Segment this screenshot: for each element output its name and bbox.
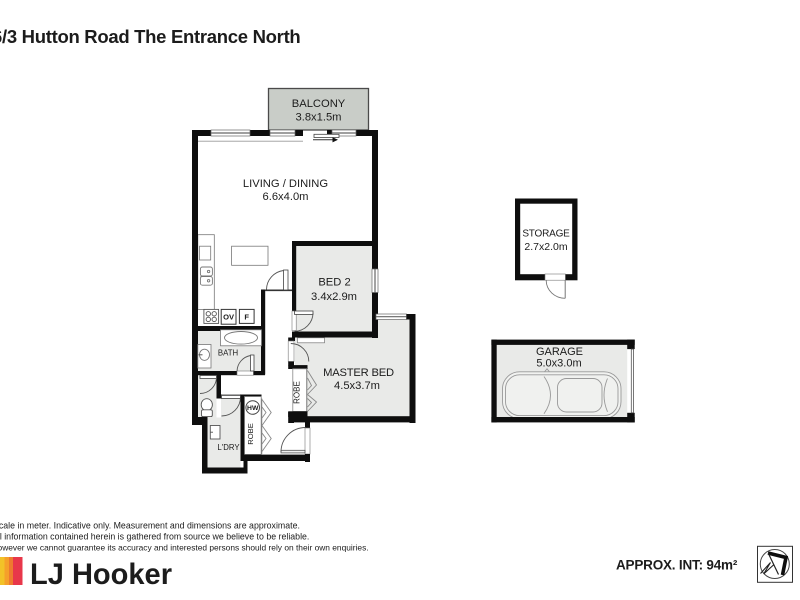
svg-text:However we cannot guarantee it: However we cannot guarantee its accuracy… — [0, 543, 369, 553]
svg-text:4.5x3.7m: 4.5x3.7m — [334, 380, 380, 392]
svg-text:APPROX. INT: 94m²: APPROX. INT: 94m² — [616, 558, 738, 573]
svg-text:2.7x2.0m: 2.7x2.0m — [524, 241, 567, 253]
svg-text:MASTER BED: MASTER BED — [323, 367, 394, 379]
svg-text:ROBE: ROBE — [292, 381, 301, 404]
svg-text:ROBE: ROBE — [246, 423, 255, 445]
svg-text:LJ Hooker: LJ Hooker — [30, 558, 173, 591]
svg-text:5.0x3.0m: 5.0x3.0m — [536, 358, 581, 370]
svg-text:All information contained here: All information contained herein is gath… — [0, 532, 309, 542]
svg-text:3.8x1.5m: 3.8x1.5m — [295, 112, 341, 124]
svg-text:OV: OV — [223, 313, 235, 322]
svg-text:STORAGE: STORAGE — [522, 229, 570, 240]
svg-text:HW: HW — [247, 405, 259, 412]
svg-text:3.4x2.9m: 3.4x2.9m — [311, 291, 357, 303]
svg-text:LIVING / DINING: LIVING / DINING — [243, 178, 328, 190]
svg-text:L'DRY: L'DRY — [217, 443, 240, 452]
svg-text:6.6x4.0m: 6.6x4.0m — [262, 191, 308, 203]
svg-text:GARAGE: GARAGE — [536, 346, 583, 358]
svg-text:F: F — [244, 313, 249, 322]
svg-text:6/3 Hutton Road The Entrance N: 6/3 Hutton Road The Entrance North — [0, 26, 300, 47]
svg-text:BATH: BATH — [218, 349, 238, 358]
svg-text:BED 2: BED 2 — [318, 277, 350, 289]
svg-text:BALCONY: BALCONY — [292, 98, 346, 110]
svg-text:Scale in meter. Indicative onl: Scale in meter. Indicative only. Measure… — [0, 521, 300, 531]
